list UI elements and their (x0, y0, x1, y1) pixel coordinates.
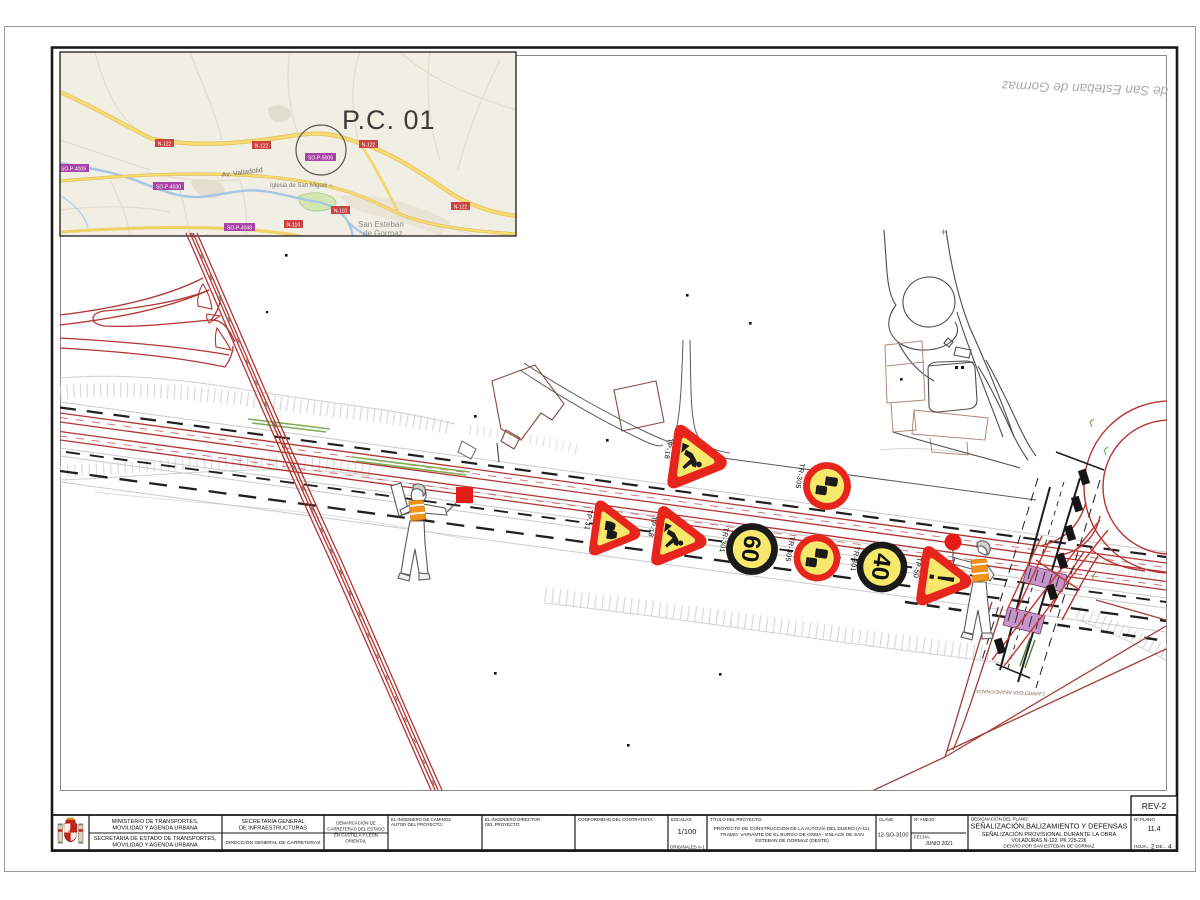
svg-text:EN CASTILLA Y LEÓN: EN CASTILLA Y LEÓN (334, 833, 378, 838)
svg-text:12-SO-3100: 12-SO-3100 (878, 833, 909, 839)
svg-text:1/100: 1/100 (678, 827, 697, 836)
svg-text:SEÑALIZACIÓN PROVISIONAL DURAN: SEÑALIZACIÓN PROVISIONAL DURANTE LA OBRA (982, 831, 1117, 838)
svg-text:N-110: N-110 (334, 208, 347, 214)
svg-text:N-122: N-122 (158, 141, 172, 147)
svg-text:4: 4 (1168, 844, 1172, 851)
svg-text:MOVILIDAD Y AGENDA URBANA: MOVILIDAD Y AGENDA URBANA (112, 826, 198, 832)
svg-text:MOVILIDAD Y AGENDA URBANA: MOVILIDAD Y AGENDA URBANA (112, 843, 198, 849)
svg-text:FECHA:: FECHA: (914, 835, 930, 840)
svg-text:N-122: N-122 (454, 204, 468, 210)
svg-text:DIRECCIÓN GENERAL DE CARRETERA: DIRECCIÓN GENERAL DE CARRETERAS (226, 839, 322, 846)
svg-text:HOJA...: HOJA... (1134, 844, 1151, 850)
svg-text:ORIGINALES A-1: ORIGINALES A-1 (670, 845, 705, 850)
svg-text:CLAVE:: CLAVE: (879, 817, 894, 822)
svg-text:CARRETERAS DEL ESTADO: CARRETERAS DEL ESTADO (327, 827, 385, 832)
svg-text:SO-P-4030: SO-P-4030 (156, 184, 181, 190)
svg-text:MINISTERIO DE TRANSPORTES,: MINISTERIO DE TRANSPORTES, (112, 819, 199, 825)
svg-text:PROYECTO DE CONSTRUCCIÓN DE LA: PROYECTO DE CONSTRUCCIÓN DE LA AUTOVÍA D… (714, 825, 871, 832)
svg-text:San Esteban: San Esteban (358, 220, 404, 229)
svg-text:40: 40 (865, 552, 895, 582)
svg-text:JUNIO 2021: JUNIO 2021 (925, 841, 953, 847)
svg-text:Iglesia de San Miguel ⌂: Iglesia de San Miguel ⌂ (270, 183, 333, 189)
svg-text:N-122: N-122 (255, 143, 269, 149)
svg-text:DESVÍO POR SAN ESTEBAN DE GORM: DESVÍO POR SAN ESTEBAN DE GORMAZ (1003, 843, 1094, 849)
svg-text:P.C. 01: P.C. 01 (342, 105, 436, 135)
svg-text:N-122: N-122 (362, 142, 376, 148)
svg-text:Nº PLANO: Nº PLANO (1134, 817, 1155, 822)
svg-text:ORIENTAL: ORIENTAL (345, 839, 367, 844)
svg-text:TRAMO: VARIANTE DE EL BURGO DE: TRAMO: VARIANTE DE EL BURGO DE OSMA - EN… (720, 832, 864, 838)
svg-text:SO-P-5006: SO-P-5006 (308, 155, 333, 161)
svg-text:DE...: DE... (1156, 844, 1167, 850)
svg-text:ESTEBAN DE GORMAZ (OESTE): ESTEBAN DE GORMAZ (OESTE) (755, 838, 829, 844)
svg-text:SO-P-4048: SO-P-4048 (227, 225, 252, 231)
svg-text:11.4: 11.4 (1147, 826, 1160, 833)
svg-text:SECRETARÍA DE ESTADO DE TRANSP: SECRETARÍA DE ESTADO DE TRANSPORTES, (94, 835, 217, 842)
svg-text:DEL PROYECTO:: DEL PROYECTO: (485, 822, 520, 827)
svg-text:SO-P-4009: SO-P-4009 (61, 166, 86, 172)
svg-text:DE INFRAESTRUCTURAS: DE INFRAESTRUCTURAS (239, 826, 307, 832)
svg-text:DEMARCACIÓN DE: DEMARCACIÓN DE (336, 821, 376, 826)
svg-text:60: 60 (735, 534, 765, 564)
svg-text:CONFORMIDAD DEL CONTRATISTA:: CONFORMIDAD DEL CONTRATISTA: (578, 817, 654, 822)
svg-text:N-110: N-110 (287, 222, 300, 228)
svg-text:REV-2: REV-2 (1142, 801, 1167, 811)
svg-text:SECRETARÍA GENERAL: SECRETARÍA GENERAL (241, 818, 304, 825)
svg-text:AUTOR DEL PROYECTO:: AUTOR DEL PROYECTO: (391, 822, 443, 827)
svg-text:SEÑALIZACIÓN,BALIZAMIENTO Y DE: SEÑALIZACIÓN,BALIZAMIENTO Y DEFENSAS (971, 822, 1128, 831)
svg-text:TÍTULO DEL PROYECTO:: TÍTULO DEL PROYECTO: (710, 817, 762, 822)
svg-text:ESCALAS:: ESCALAS: (671, 817, 692, 822)
svg-text:Nº ANEJO:: Nº ANEJO: (914, 817, 936, 822)
svg-text:2: 2 (1151, 844, 1155, 851)
